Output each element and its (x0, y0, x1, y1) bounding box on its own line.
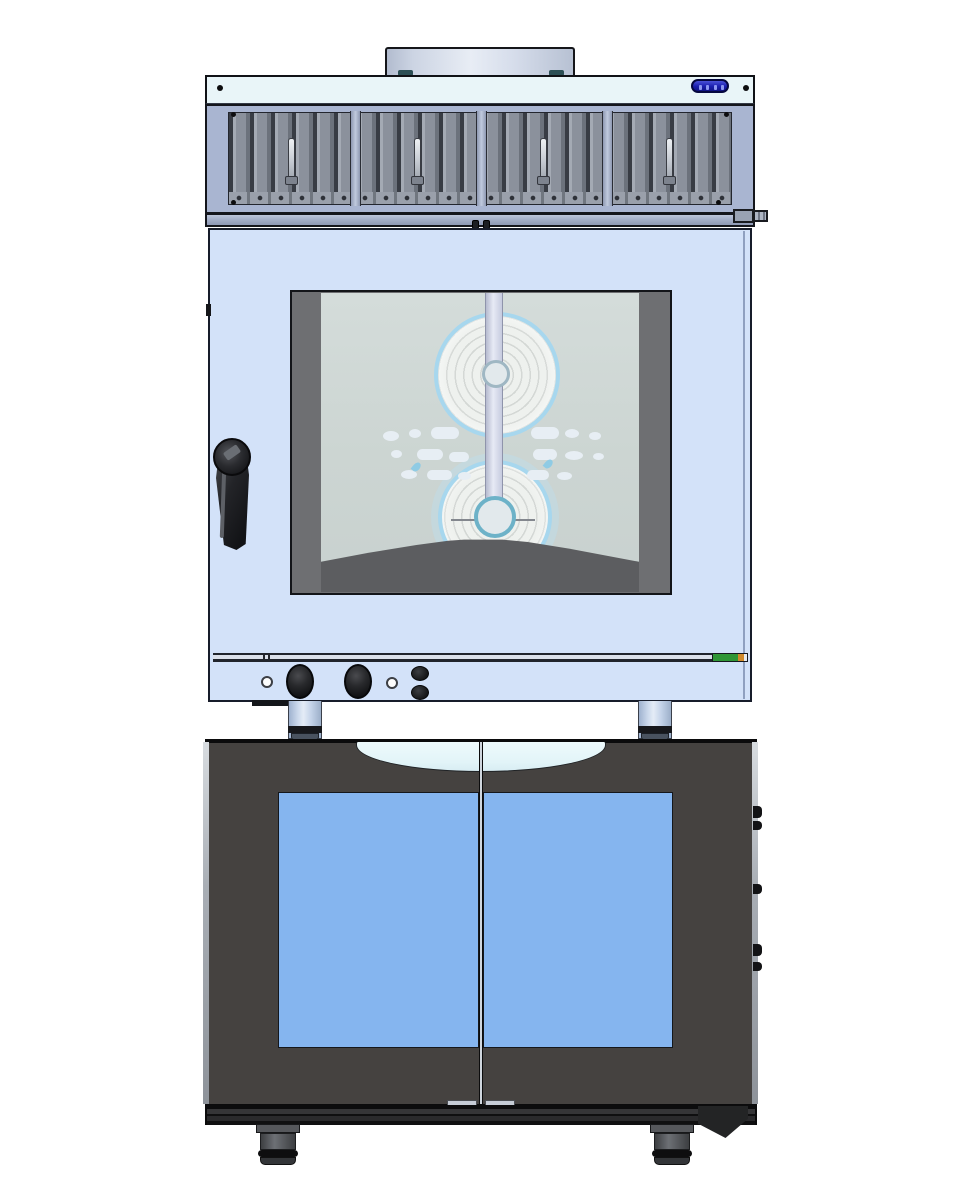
hinge-knob (753, 806, 762, 818)
filter-handle-base (411, 176, 424, 185)
oven-door-window (290, 290, 672, 595)
rotary-knob-left (286, 664, 314, 699)
steam-blob (565, 451, 583, 460)
foot-collar (650, 1124, 694, 1133)
louver-mullion (350, 111, 361, 206)
steam-blob (527, 470, 549, 480)
screw-icon (716, 200, 721, 205)
cabinet-side-trim (752, 742, 758, 1104)
hood-status-display (691, 79, 729, 93)
indicator-lamp (386, 677, 398, 689)
steam-blob (531, 427, 559, 439)
hood-drain-fitting-cap (753, 210, 768, 222)
steam-blob (427, 470, 452, 480)
louver-mullion (476, 111, 487, 206)
cad-render-canvas (0, 0, 970, 1200)
hood-bottom-rail (205, 213, 755, 227)
screw-icon (231, 200, 236, 205)
center-steam-duct (485, 293, 503, 520)
hood-top-band (205, 75, 755, 104)
filter-handle-base (663, 176, 676, 185)
screw-icon (231, 112, 236, 117)
cabinet-door-glass-left (278, 792, 479, 1048)
push-button-upper (411, 666, 429, 681)
push-button-lower (411, 685, 429, 700)
oven-door-glass (321, 293, 639, 592)
foot-cap (654, 1157, 690, 1165)
steam-blob (565, 429, 579, 438)
fan-hub-lower (474, 496, 516, 538)
oven-hinge-mark (206, 304, 211, 316)
foot-collar (256, 1124, 300, 1133)
cabinet-foot-right (650, 1124, 694, 1166)
screw-icon (743, 85, 749, 91)
steam-blob (593, 453, 604, 460)
rating-label (712, 653, 748, 662)
steam-blob (589, 432, 601, 440)
steam-blob (391, 450, 402, 458)
steam-blob (383, 431, 399, 441)
filter-handle-base (285, 176, 298, 185)
groove-tick (263, 654, 265, 661)
oven-panel-seam (743, 231, 745, 699)
steam-blob (533, 449, 557, 460)
control-strip-groove (213, 653, 747, 662)
foot-ring (652, 1150, 692, 1157)
foot-cap (260, 1157, 296, 1165)
leg-band (638, 726, 672, 733)
cabinet-door-glass-right (483, 792, 673, 1048)
hinge-knob (753, 962, 762, 971)
screw-icon (217, 85, 223, 91)
filter-handle-base (537, 176, 550, 185)
steam-blob (557, 472, 572, 480)
rotary-knob-right (344, 664, 372, 699)
louver-mullion (602, 111, 613, 206)
cabinet-base-strip (205, 1105, 757, 1125)
hinge-knob (753, 884, 762, 894)
cabinet-foot-left (256, 1124, 300, 1166)
steam-blob (417, 449, 443, 460)
leg-band (288, 726, 322, 733)
cabinet-right-bracket (698, 1106, 748, 1138)
screw-icon (724, 112, 729, 117)
foot-body (260, 1133, 296, 1150)
cabinet-side-trim (203, 742, 209, 1104)
fan-hub-upper (482, 360, 510, 388)
flue-collar (385, 47, 575, 77)
indicator-lamp (261, 676, 273, 688)
foot-ring (258, 1150, 298, 1157)
steam-blob (449, 452, 469, 462)
steam-blob (409, 429, 421, 438)
groove-tick (268, 654, 270, 661)
steam-blob (431, 427, 459, 439)
hinge-knob (753, 821, 762, 830)
hinge-knob (753, 944, 762, 956)
hood-drain-fitting (733, 209, 754, 223)
foot-body (654, 1133, 690, 1150)
interior-bottom-deflector (321, 533, 639, 592)
steam-blob (458, 472, 471, 480)
